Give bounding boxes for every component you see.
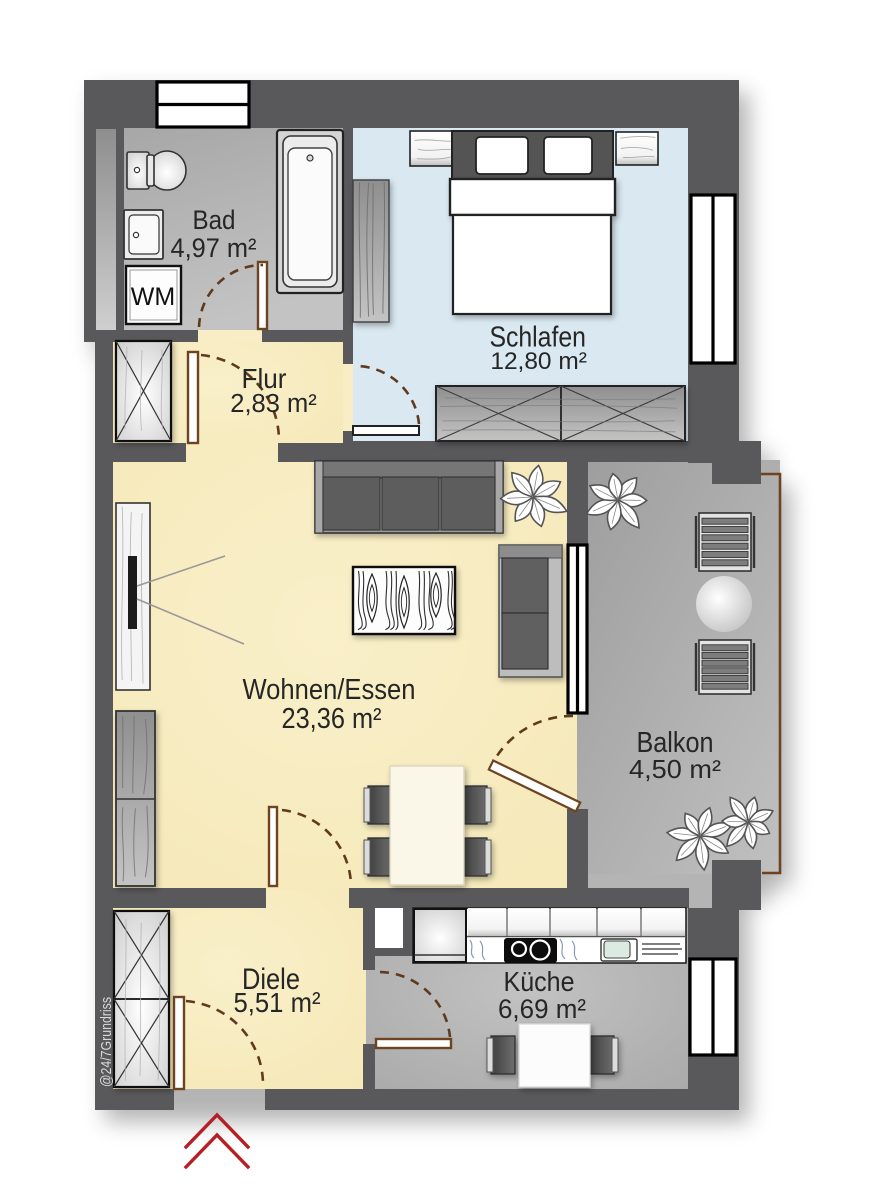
svg-text:12,80 m²: 12,80 m² <box>490 348 586 375</box>
svg-text:4,50 m²: 4,50 m² <box>629 754 721 784</box>
svg-text:6,69 m²: 6,69 m² <box>498 994 586 1024</box>
svg-text:WM: WM <box>131 283 175 311</box>
svg-text:23,36 m²: 23,36 m² <box>282 703 382 735</box>
svg-text:Küche: Küche <box>504 966 575 997</box>
svg-text:Bad: Bad <box>193 205 236 235</box>
svg-text:2,83 m²: 2,83 m² <box>230 390 317 418</box>
svg-text:5,51 m²: 5,51 m² <box>234 987 321 1018</box>
svg-text:Wohnen/Essen: Wohnen/Essen <box>243 674 416 706</box>
svg-text:@24/7Grundriss: @24/7Grundriss <box>99 997 115 1087</box>
svg-text:4,97 m²: 4,97 m² <box>171 233 257 263</box>
